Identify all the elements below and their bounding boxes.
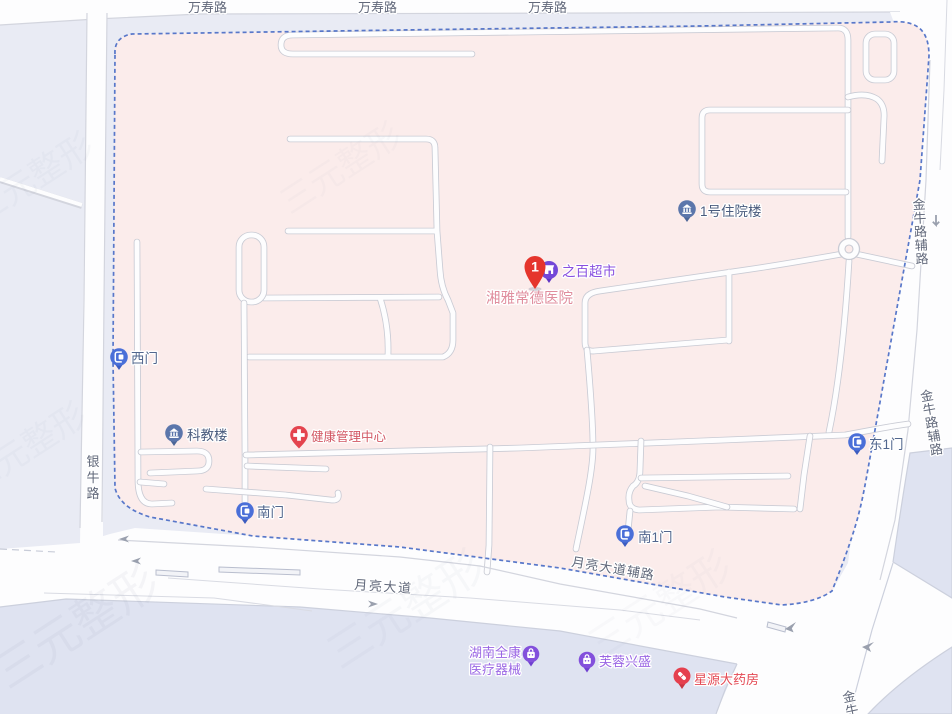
svg-text:星源大药房: 星源大药房 [694, 672, 759, 687]
svg-text:医疗器械: 医疗器械 [469, 662, 521, 677]
svg-text:南门: 南门 [257, 505, 284, 520]
svg-text:1: 1 [531, 259, 539, 275]
svg-text:健康管理中心: 健康管理中心 [311, 429, 387, 444]
svg-text:万寿路: 万寿路 [358, 0, 397, 15]
svg-text:东1门: 东1门 [869, 437, 904, 452]
svg-text:万寿路: 万寿路 [188, 0, 227, 15]
svg-text:之百超市: 之百超市 [562, 263, 616, 279]
svg-text:湘雅常德医院: 湘雅常德医院 [486, 290, 573, 307]
svg-text:银牛路: 银牛路 [86, 454, 99, 501]
svg-text:西门: 西门 [131, 351, 158, 366]
svg-text:1号住院楼: 1号住院楼 [700, 204, 762, 219]
svg-text:万寿路: 万寿路 [528, 0, 567, 15]
svg-text:芙蓉兴盛: 芙蓉兴盛 [599, 654, 651, 669]
svg-text:科教楼: 科教楼 [187, 428, 228, 443]
svg-text:南1门: 南1门 [638, 530, 673, 545]
svg-text:湖南全康: 湖南全康 [469, 645, 521, 660]
